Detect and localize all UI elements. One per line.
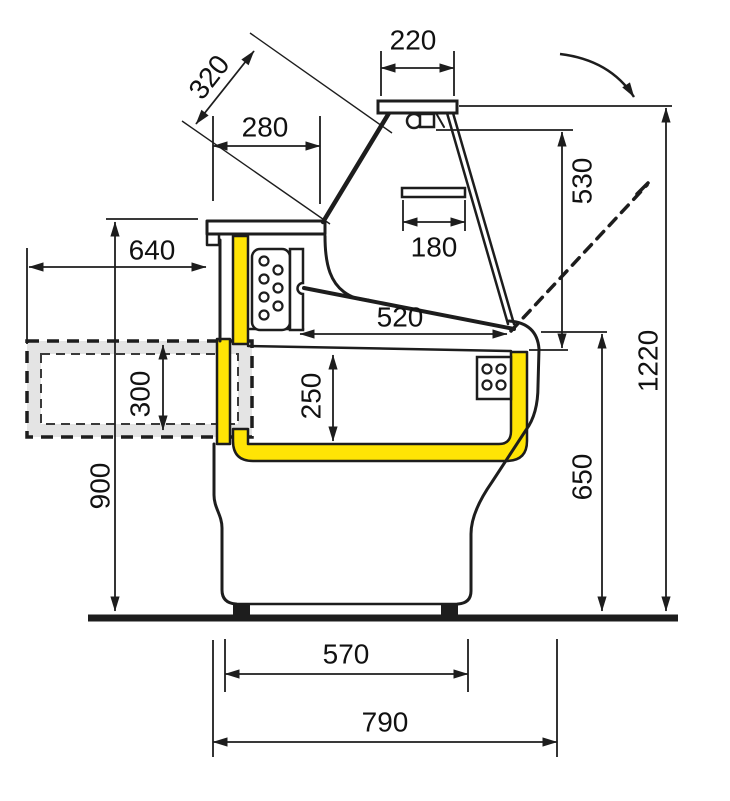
dim-label-220: 220	[390, 25, 437, 56]
ground	[88, 604, 678, 618]
dim-label-900: 900	[85, 463, 116, 510]
dim-label-1220: 1220	[633, 330, 664, 392]
interior-back-curve	[325, 236, 368, 300]
insulation-lower-left	[217, 339, 230, 444]
dim-label-300: 300	[125, 371, 156, 418]
evaporator-grille	[252, 249, 303, 330]
dim-label-180: 180	[411, 232, 458, 263]
superstructure	[323, 101, 648, 331]
dim-label-520: 520	[377, 302, 424, 333]
worktop-slab	[207, 221, 325, 234]
lamp-bracket	[420, 114, 434, 127]
grille-body	[252, 249, 290, 330]
front-wall-lower	[214, 444, 236, 604]
opening-direction-arrow	[560, 54, 634, 97]
rear-glass-panel	[323, 113, 389, 222]
dim-label-250: 250	[296, 373, 327, 420]
dim-label-530: 530	[567, 158, 598, 205]
front-glass-open-dashed	[511, 185, 647, 331]
fan-block	[477, 357, 511, 399]
dim-label-790: 790	[362, 707, 409, 738]
inner-shelf	[402, 188, 465, 197]
counter-cross-section-diagram: 220 320 280 180 530 1220 640 900 300 250…	[0, 0, 730, 801]
open-glass-tip	[637, 183, 648, 194]
top-cap	[378, 101, 457, 113]
diagram-page: 220 320 280 180 530 1220 640 900 300 250…	[0, 0, 730, 801]
foot-left	[233, 604, 250, 615]
insulation-upper-left	[233, 236, 248, 344]
worktop	[207, 221, 325, 245]
dim-label-320: 320	[182, 49, 235, 105]
dim-180	[403, 200, 465, 231]
dim-790	[213, 639, 557, 757]
foot-right	[441, 604, 458, 615]
dim-label-650: 650	[567, 454, 598, 501]
dim-label-280: 280	[242, 112, 289, 143]
dim-640	[27, 248, 206, 344]
front-glass-inner	[453, 113, 514, 324]
fan-block-body	[477, 357, 511, 399]
dim-label-640: 640	[129, 235, 176, 266]
deck-bottom-line	[248, 346, 511, 351]
dim-220	[381, 51, 454, 96]
lamp-tick	[436, 113, 444, 127]
dim-label-570: 570	[323, 639, 370, 670]
front-glass-outer	[447, 113, 508, 324]
grille-plate	[290, 249, 303, 330]
